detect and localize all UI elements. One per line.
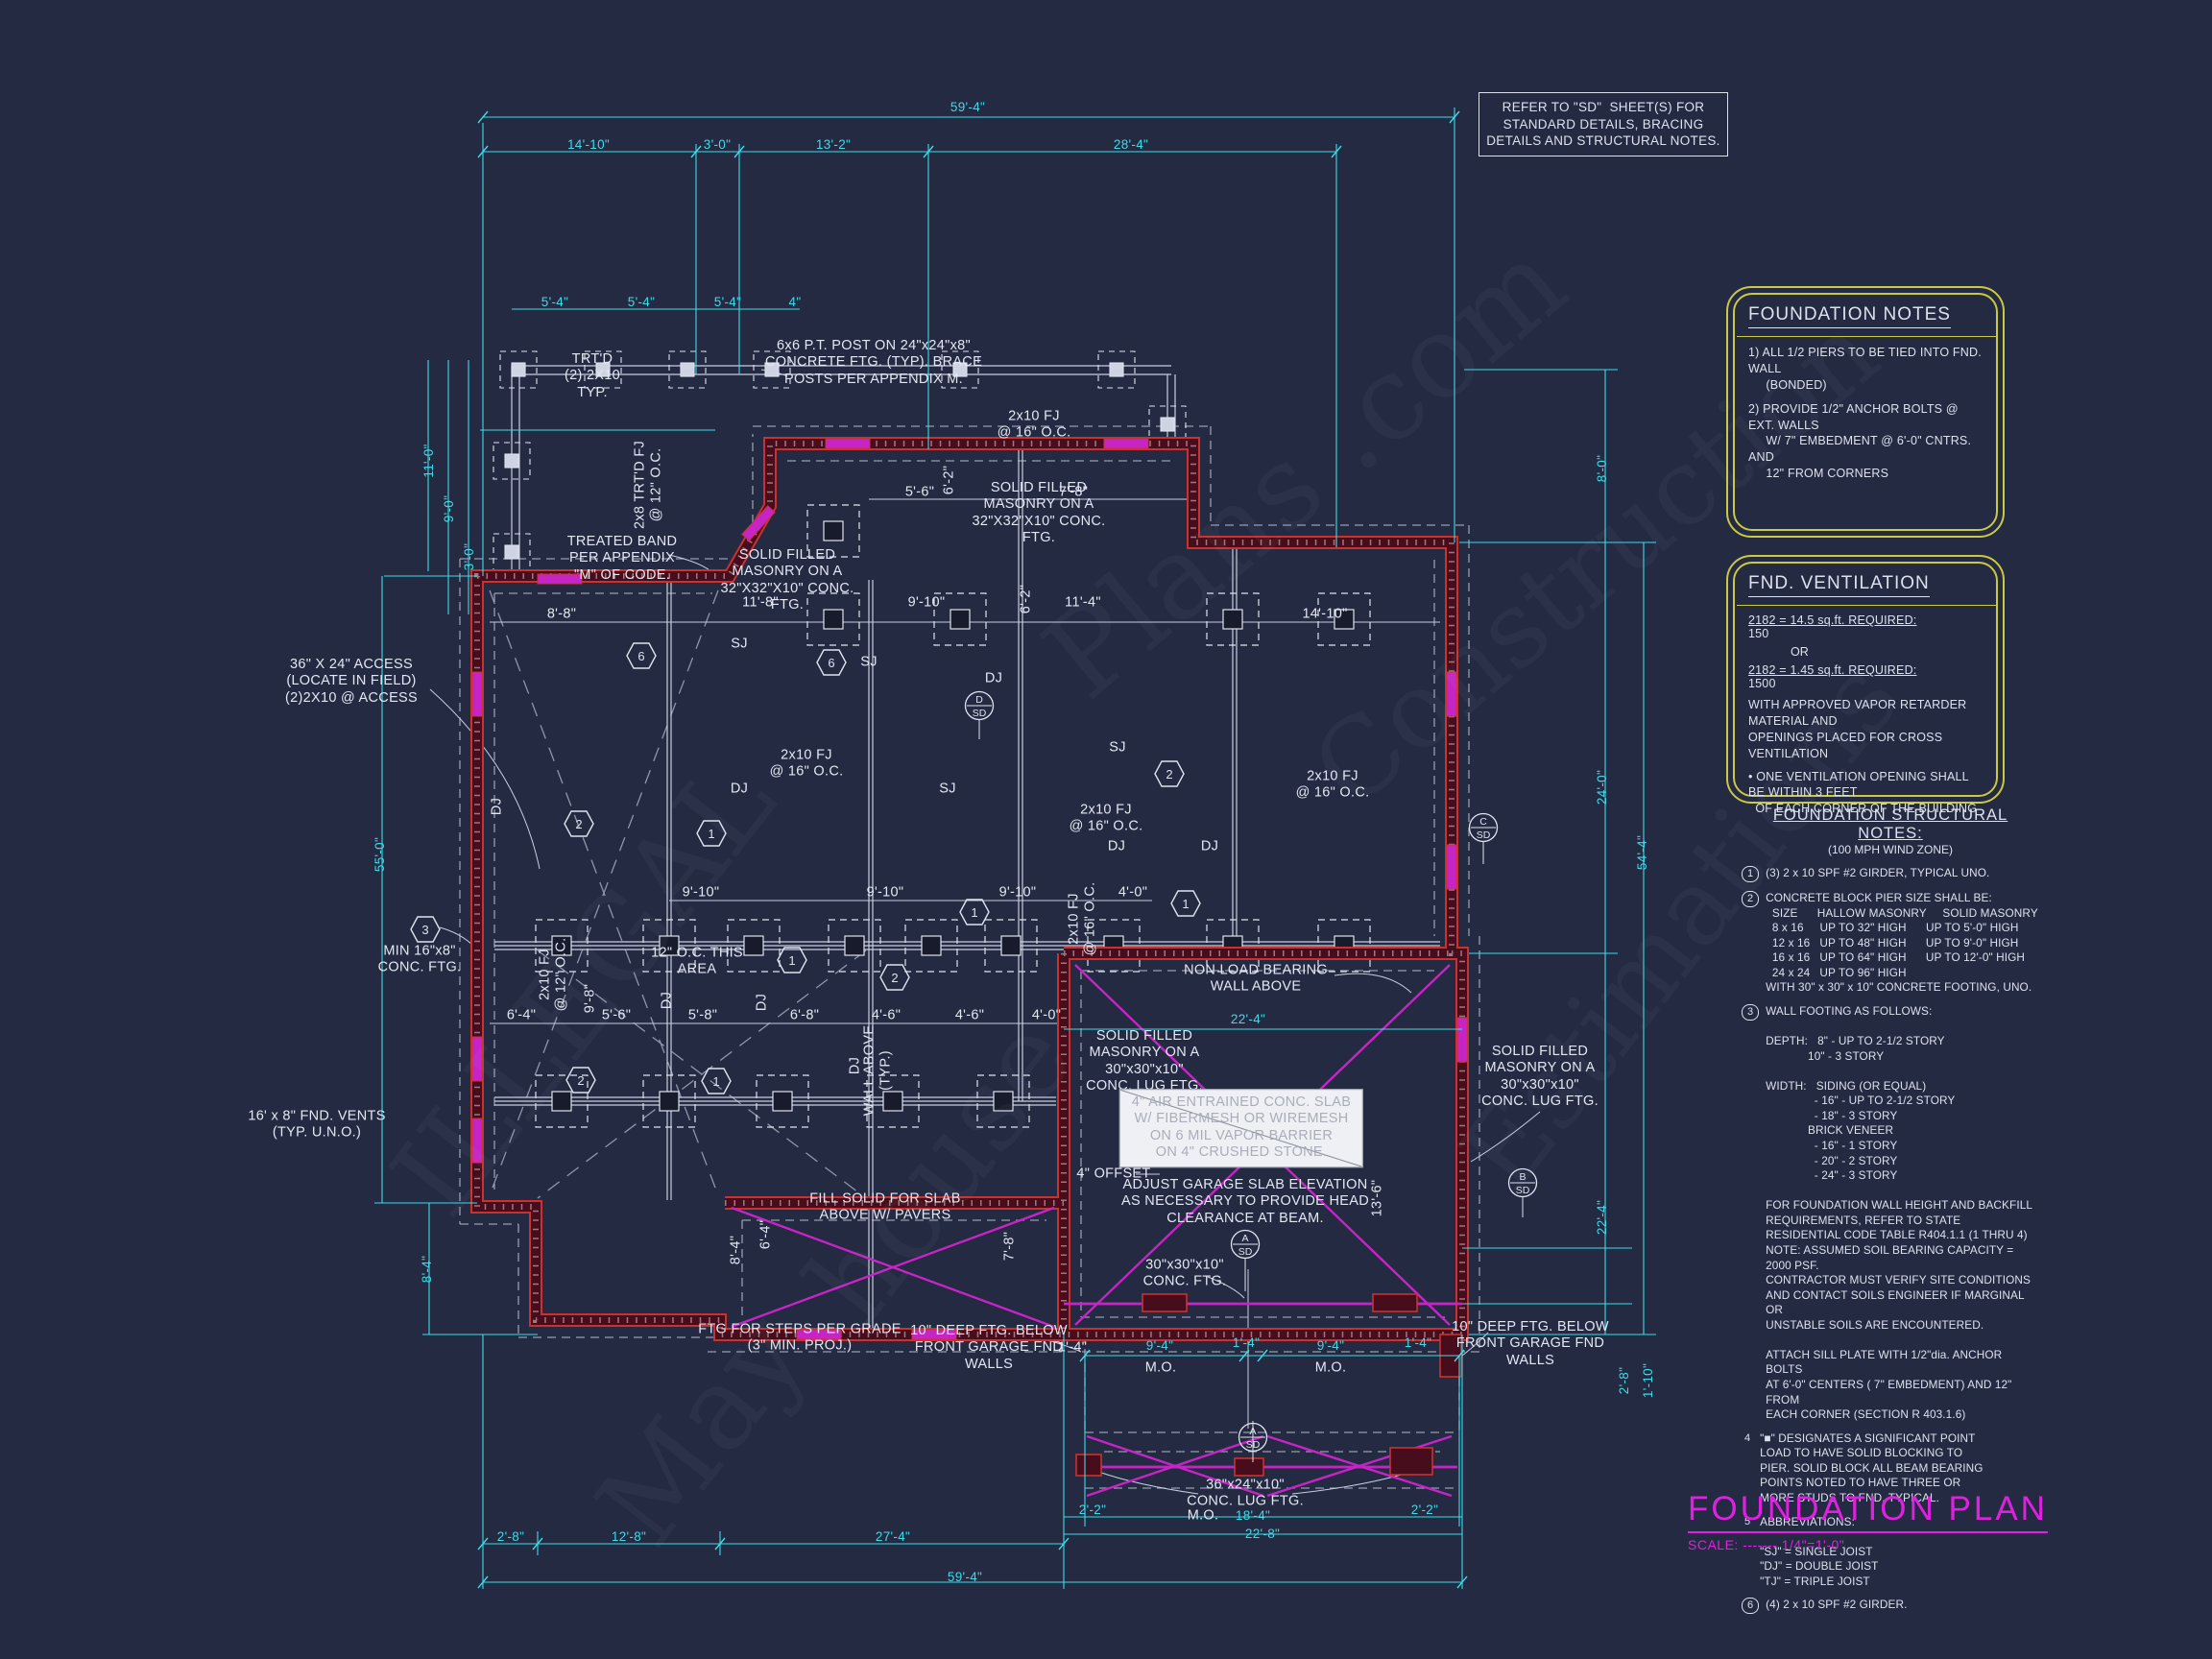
keynote-hex-marker: 6 <box>815 648 848 682</box>
dimension-label: 12'-8" <box>612 1529 646 1545</box>
plan-annotation: 13'-6" <box>1369 1180 1385 1217</box>
plan-annotation: 30"x30"x10" CONC. FTG. <box>1143 1258 1227 1291</box>
plan-annotation: 2x10 FJ @ 16" O.C. <box>1296 769 1370 803</box>
plan-annotation: 4'-0" <box>1032 1007 1061 1023</box>
dimension-label: 14'-10" <box>567 137 610 153</box>
foundation-notes-items: 1) ALL 1/2 PIERS TO BE TIED INTO FND. WA… <box>1748 345 1984 482</box>
plan-annotation: 5'-6" <box>602 1007 631 1023</box>
svg-text:SD: SD <box>1238 1246 1253 1258</box>
svg-text:D: D <box>975 694 983 706</box>
plan-annotation: DJ <box>659 992 675 1009</box>
dimension-label: 22'-4" <box>1595 1200 1610 1235</box>
plan-annotation: 10" DEEP FTG. BELOW FRONT GARAGE FND WAL… <box>910 1323 1068 1373</box>
plan-annotation: 8'-8" <box>547 606 576 622</box>
svg-text:2: 2 <box>891 971 898 985</box>
dimension-label: 5'-4" <box>628 295 655 310</box>
foundation-notes-title: FOUNDATION NOTES <box>1748 304 1951 328</box>
plan-annotation: DJ <box>731 781 748 797</box>
plan-annotation: 2x8 TRT'D FJ @ 12" O.C. <box>633 441 666 529</box>
plan-annotation: SOLID FILLED MASONRY ON A 30"x30"x10" CO… <box>1481 1044 1599 1111</box>
plan-annotation: FTG FOR STEPS PER GRADE (3" MIN. PROJ.) <box>698 1322 902 1356</box>
section-circle-marker: BSD <box>1507 1167 1538 1203</box>
plan-annotation: ADJUST GARAGE SLAB ELEVATION AS NECESSAR… <box>1121 1177 1369 1227</box>
dimension-label: 5'-4" <box>714 295 741 310</box>
dimension-label: 13'-2" <box>816 137 851 153</box>
plan-annotation: 11'-8" <box>742 594 779 611</box>
foundation-note-item: 2) PROVIDE 1/2" ANCHOR BOLTS @ EXT. WALL… <box>1748 401 1984 482</box>
dimension-label: 27'-4" <box>876 1529 910 1545</box>
dimension-label: 55'-0" <box>373 837 388 872</box>
keynote-hex-marker: 3 <box>409 915 442 949</box>
structural-note-text: (3) 2 x 10 SPF #2 GIRDER, TYPICAL UNO. <box>1766 866 1989 882</box>
svg-text:1: 1 <box>1182 897 1189 911</box>
reference-note-box: REFER TO "SD" SHEET(S) FOR STANDARD DETA… <box>1479 92 1728 156</box>
structural-notes-title: FOUNDATION STRUCTURAL NOTES: <box>1742 806 2039 843</box>
plan-annotation: 7'-8" <box>1001 1232 1018 1261</box>
svg-text:6: 6 <box>637 649 644 663</box>
svg-text:6: 6 <box>828 656 834 670</box>
svg-text:1: 1 <box>788 953 795 968</box>
dimension-label: 24'-0" <box>1595 770 1610 805</box>
dimension-label: 1'-4" <box>1233 1335 1260 1351</box>
dimension-label: 1'-4" <box>1405 1335 1431 1351</box>
keynote-hex-marker: 2 <box>563 809 595 843</box>
svg-text:SD: SD <box>1516 1185 1530 1196</box>
plan-annotation: 10" DEEP FTG. BELOW FRONT GARAGE FND WAL… <box>1452 1319 1609 1369</box>
plan-annotation: 2x10 FJ @ 16" O.C. <box>1070 803 1143 836</box>
keynote-hex-marker: 1 <box>1169 889 1202 923</box>
dimension-label: 3'-0" <box>462 543 477 570</box>
plan-annotation: 2x10 FJ @ 16" O.C. <box>998 409 1071 443</box>
dimension-label: 59'-4" <box>950 100 985 115</box>
keynote-hex-marker: 1 <box>700 1067 733 1100</box>
plan-annotation: 9'-10" <box>683 884 720 901</box>
structural-note-number: 6 <box>1742 1598 1759 1614</box>
dimension-label: 1'-10" <box>1641 1363 1656 1398</box>
plan-annotation: SOLID FILLED MASONRY ON A 30"x30"x10" CO… <box>1086 1028 1203 1095</box>
plan-annotation: 9'-10" <box>999 884 1037 901</box>
svg-text:A: A <box>1241 1233 1248 1244</box>
plan-annotation: 2x10 FJ @ 16" O.C. <box>1067 882 1100 956</box>
svg-text:1: 1 <box>971 905 977 920</box>
svg-text:SD: SD <box>1477 829 1491 841</box>
plan-annotation: NON LOAD BEARING WALL ABOVE <box>1184 963 1328 997</box>
plan-annotation: DJ <box>847 1057 863 1074</box>
svg-text:2: 2 <box>577 1073 584 1088</box>
dimension-label: 22'-8" <box>1245 1527 1280 1542</box>
dimension-label: 2'-2" <box>1079 1503 1106 1518</box>
plan-annotation: 9'-8" <box>582 984 598 1013</box>
section-circle-marker: CSD <box>1468 812 1499 848</box>
plan-annotation: SJ <box>860 654 878 670</box>
section-circle-marker: ASD <box>1238 1422 1268 1457</box>
svg-text:2: 2 <box>1166 767 1172 781</box>
slab-note-box: 4" AIR ENTRAINED CONC. SLAB W/ FIBERMESH… <box>1119 1089 1363 1167</box>
plan-annotation: SJ <box>1109 739 1126 756</box>
structural-note-item: 6(4) 2 x 10 SPF #2 GIRDER. <box>1742 1598 2039 1614</box>
dimension-label: 4" <box>789 295 802 310</box>
plan-annotation: SOLID FILLED MASONRY ON A 32"X32"X10" CO… <box>720 547 854 614</box>
sheet-title: FOUNDATION PLAN <box>1688 1490 2048 1533</box>
plan-annotation: 2x10 FJ @ 16" O.C. <box>770 748 844 781</box>
plan-annotation: 11'-4" <box>1065 594 1101 611</box>
ventilation-panel: FND. VENTILATION 2182 = 14.5 sq.ft. REQU… <box>1726 555 2005 804</box>
dimension-label: 59'-4" <box>948 1570 982 1585</box>
dimension-label: 9'-0" <box>442 495 457 522</box>
structural-note-item: 2CONCRETE BLOCK PIER SIZE SHALL BE: SIZE… <box>1742 891 2039 996</box>
plan-annotation: FILL SOLID FOR SLAB ABOVE W/ PAVERS <box>809 1191 960 1225</box>
structural-note-number: 3 <box>1742 1004 1759 1021</box>
plan-annotation: M.O. <box>1145 1359 1177 1376</box>
dimension-label: 3'-0" <box>704 137 731 153</box>
plan-annotation: DJ <box>754 994 770 1011</box>
dimension-label: 5'-4" <box>541 295 568 310</box>
plan-annotation: 9'-10" <box>908 594 946 611</box>
svg-text:B: B <box>1519 1171 1526 1183</box>
dimension-label: 11'-0" <box>421 444 437 477</box>
ventilation-formula2: 2182 = 1.45 sq.ft. REQUIRED: <box>1748 663 1984 677</box>
svg-text:2: 2 <box>575 817 582 831</box>
plan-annotation: SJ <box>939 781 956 797</box>
structural-note-text: WALL FOOTING AS FOLLOWS: DEPTH: 8" - UP … <box>1766 1004 2039 1423</box>
plan-annotation: 12" O.C. THIS AREA <box>651 946 743 979</box>
dimension-label: 2'-2" <box>1411 1503 1438 1518</box>
svg-text:1: 1 <box>708 827 714 841</box>
ventilation-formula2-denominator: 1500 <box>1748 677 1984 690</box>
plan-annotation: 6'-2" <box>1018 585 1034 613</box>
plan-annotation: DJ <box>985 670 1002 686</box>
keynote-hex-marker: 1 <box>776 946 808 979</box>
dimension-label: 18'-4" <box>1236 1508 1270 1524</box>
dimension-label: 8'-0" <box>1595 455 1610 482</box>
plan-annotation: SJ <box>731 636 748 652</box>
plan-annotation: 36" X 24" ACCESS (LOCATE IN FIELD) (2)2X… <box>285 657 418 707</box>
keynote-hex-marker: 2 <box>565 1066 597 1099</box>
svg-text:A: A <box>1249 1426 1256 1437</box>
svg-text:SD: SD <box>1246 1439 1261 1451</box>
plan-annotation: 6x6 P.T. POST ON 24"x24"x8" CONCRETE FTG… <box>765 338 982 388</box>
plan-annotation: TRT'D (2) 2X10 TYP. <box>565 351 620 401</box>
plan-annotation: DJ <box>1201 838 1218 854</box>
plan-annotation: 6'-4" <box>757 1220 774 1249</box>
structural-note-number: 1 <box>1742 866 1759 882</box>
keynote-hex-marker: 2 <box>1153 759 1186 793</box>
plan-annotation: 8'-4" <box>728 1236 744 1264</box>
plan-annotation: TREATED BAND PER APPENDIX "M" OF CODE. <box>567 534 678 584</box>
panel-divider <box>1737 605 1998 606</box>
plan-annotation: 1'-4" <box>1058 1339 1087 1356</box>
plan-annotation: 9'-10" <box>867 884 904 901</box>
structural-note-item: 1(3) 2 x 10 SPF #2 GIRDER, TYPICAL UNO. <box>1742 866 2039 882</box>
dimension-label: 22'-4" <box>1231 1012 1265 1027</box>
dimension-label: 8'-4" <box>420 1256 435 1283</box>
foundation-notes-panel: FOUNDATION NOTES 1) ALL 1/2 PIERS TO BE … <box>1726 286 2005 538</box>
plan-annotation: 4'-6" <box>872 1007 901 1023</box>
keynote-hex-marker: 2 <box>878 963 911 997</box>
plan-annotation: M.O. <box>1188 1507 1219 1524</box>
plan-annotation: 6'-2" <box>941 466 957 494</box>
title-block: FOUNDATION PLAN SCALE: ------- 1/4"=1'-0… <box>1688 1490 2048 1552</box>
svg-text:3: 3 <box>421 923 428 937</box>
dimension-label: 54'-4" <box>1635 835 1650 870</box>
structural-note-text: (4) 2 x 10 SPF #2 GIRDER. <box>1766 1598 1907 1614</box>
structural-note-number: 2 <box>1742 891 1759 907</box>
ventilation-formula1-denominator: 150 <box>1748 627 1984 640</box>
ventilation-or: OR <box>1791 645 1984 659</box>
structural-note-item: 3WALL FOOTING AS FOLLOWS: DEPTH: 8" - UP… <box>1742 1004 2039 1423</box>
plan-annotation: M.O. <box>1315 1359 1347 1376</box>
plan-annotation: 5'-6" <box>905 484 934 500</box>
plan-annotation: 6'-8" <box>790 1007 819 1023</box>
plan-annotation: WALL ABOVE (TYP.) <box>862 1025 896 1117</box>
section-circle-marker: DSD <box>964 690 995 726</box>
panel-divider <box>1737 336 1998 337</box>
svg-text:C: C <box>1479 816 1487 828</box>
dimension-label: 9'-4" <box>1317 1338 1344 1354</box>
sheet-scale: SCALE: ------- 1/4"=1'-0" <box>1688 1537 2048 1552</box>
dimension-label: 9'-4" <box>1146 1338 1173 1354</box>
plan-annotation: 6'-4" <box>507 1007 536 1023</box>
plan-annotation: 16' x 8" FND. VENTS (TYP. U.N.O.) <box>248 1109 385 1142</box>
dimension-label: 2'-8" <box>1617 1367 1632 1394</box>
keynote-hex-marker: 1 <box>958 898 991 931</box>
ventilation-note-1: WITH APPROVED VAPOR RETARDER MATERIAL AN… <box>1748 697 1984 762</box>
plan-annotation: 36"x24"x10" CONC. LUG FTG. <box>1187 1478 1304 1511</box>
foundation-note-item: 1) ALL 1/2 PIERS TO BE TIED INTO FND. WA… <box>1748 345 1984 394</box>
plan-annotation: 2x10 FJ @ 12" O.C. <box>538 938 571 1012</box>
plan-annotation: DJ <box>489 798 505 815</box>
plan-annotation: DJ <box>1108 838 1125 854</box>
keynote-hex-marker: 6 <box>625 641 658 675</box>
plan-annotation: 14'-10" <box>1302 606 1347 622</box>
plan-annotation: 4'-6" <box>955 1007 984 1023</box>
dimension-label: 2'-8" <box>497 1529 524 1545</box>
dimension-label: 28'-4" <box>1114 137 1148 153</box>
reference-note-text: REFER TO "SD" SHEET(S) FOR STANDARD DETA… <box>1483 99 1723 150</box>
svg-text:1: 1 <box>712 1074 719 1089</box>
plan-annotation: 7'-8" <box>1059 484 1088 500</box>
section-circle-marker: ASD <box>1230 1229 1261 1264</box>
ventilation-formula1: 2182 = 14.5 sq.ft. REQUIRED: <box>1748 613 1984 627</box>
plan-annotation: 5'-8" <box>688 1007 717 1023</box>
ventilation-title: FND. VENTILATION <box>1748 573 1930 597</box>
svg-text:SD: SD <box>973 708 987 719</box>
structural-notes-subtitle: (100 MPH WIND ZONE) <box>1742 843 2039 856</box>
foundation-plan-sheet: ILLEGALMayhousePlans .comConstructionEst… <box>0 0 2212 1659</box>
keynote-hex-marker: 1 <box>695 819 728 853</box>
plan-annotation: 4'-0" <box>1118 884 1147 901</box>
structural-note-text: CONCRETE BLOCK PIER SIZE SHALL BE: SIZE … <box>1766 891 2038 996</box>
